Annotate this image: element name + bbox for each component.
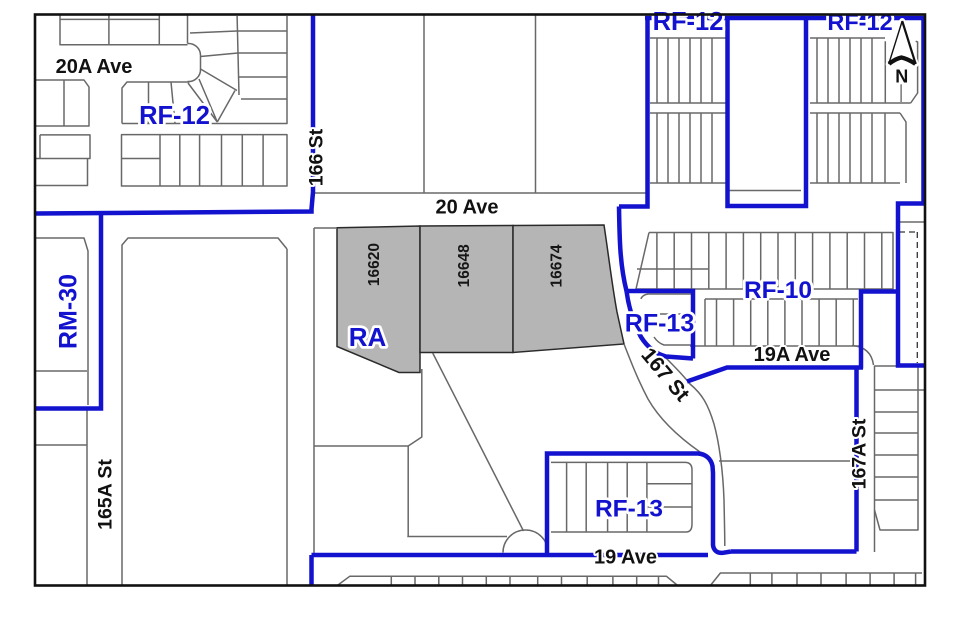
svg-text:RM-30: RM-30 [55,274,83,349]
svg-text:RF-13: RF-13 [595,496,663,523]
svg-text:RF-12: RF-12 [653,8,724,36]
svg-text:RF-13: RF-13 [625,310,694,338]
svg-text:20A Ave: 20A Ave [56,56,133,78]
svg-text:RF-10: RF-10 [744,277,812,304]
svg-text:20 Ave: 20 Ave [435,197,498,219]
svg-text:RF-12: RF-12 [139,102,210,130]
svg-text:165A St: 165A St [95,459,117,530]
svg-text:19 Ave: 19 Ave [594,547,657,569]
svg-text:RF-12: RF-12 [827,9,892,35]
svg-text:16620: 16620 [366,243,383,286]
svg-text:167A St: 167A St [849,418,871,489]
svg-text:16674: 16674 [549,244,566,287]
svg-text:N: N [895,67,908,87]
svg-text:19A Ave: 19A Ave [754,344,831,366]
svg-text:RA: RA [349,322,387,352]
svg-text:166 St: 166 St [306,128,328,186]
svg-text:16648: 16648 [456,244,473,287]
